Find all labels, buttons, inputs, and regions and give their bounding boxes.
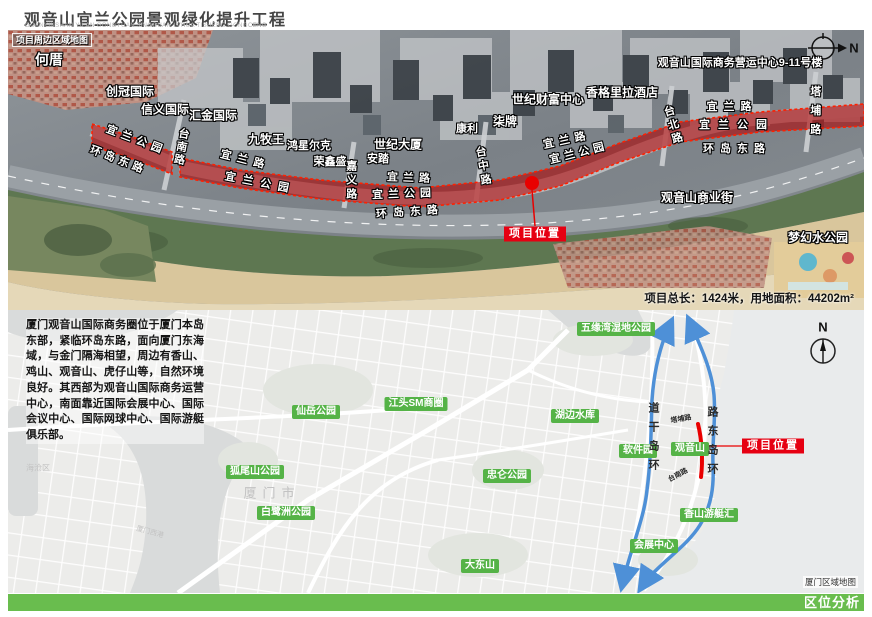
city-map: 厦门观音山国际商务圈位于厦门本岛东部，紧临环岛东路，面向厦门东海域，与金门隔海相… <box>8 310 864 593</box>
map-caption: 厦门区域地图 <box>803 576 858 588</box>
vertical-road-label: 道干岛环 <box>645 402 661 478</box>
map-corner-label: 项目周边区域地图 <box>12 33 92 47</box>
road-label: 宜兰公园 <box>699 120 775 132</box>
road-label: 宜兰公园 <box>372 188 436 202</box>
area-badge: 仙岳公园 <box>292 405 340 419</box>
building-label: 观音山商业街 <box>661 192 733 205</box>
district-label: 海沧区 <box>26 463 50 474</box>
area-badge: 白鹭洲公园 <box>257 506 315 520</box>
vertical-road-label: 路东岛环 <box>704 406 720 482</box>
area-badge: 大东山 <box>461 559 499 573</box>
area-badge: 江头SM商圈 <box>385 397 448 411</box>
building-label: 汇金国际 <box>189 110 237 123</box>
page-subtitle: GUANYINSHAN YILAN GONGYUAN JINGGUAN LVHU… <box>25 23 267 29</box>
building-label: 九牧王 <box>248 134 284 147</box>
building-label: 何厝 <box>35 53 63 68</box>
area-badge: 五缘湾湿地公园 <box>577 322 655 336</box>
compass-n-label-lower: N <box>818 320 827 335</box>
section-bar: 区位分析 <box>8 594 864 611</box>
section-title: 区位分析 <box>804 594 860 611</box>
project-location-badge: 项目位置 <box>504 227 566 242</box>
building-label: 创冠国际 <box>106 86 154 99</box>
area-badge: 香山游艇汇 <box>680 508 738 522</box>
project-stats: 项目总长：1424米，用地面积：44202m² <box>644 290 854 306</box>
compass-n-label: N <box>849 41 858 56</box>
location-description: 厦门观音山国际商务圈位于厦门本岛东部，紧临环岛东路，面向厦门东海域，与金门隔海相… <box>26 318 204 444</box>
area-badge: 会展中心 <box>630 539 678 553</box>
building-label: 安踏 <box>367 154 389 166</box>
building-label: 鸿星尔克 <box>287 141 331 153</box>
project-location-badge-lower: 项目位置 <box>742 439 804 454</box>
satellite-map: 项目周边区域地图 何厝创冠国际信义国际汇金国际九牧王鸿星尔克荣鑫盛安踏世纪大厦康… <box>8 30 864 310</box>
area-badge: 忠仑公园 <box>483 469 531 483</box>
road-label: 环岛东路 <box>703 144 771 156</box>
road-label: 塔埔路 <box>808 86 820 143</box>
area-badge: 狐尾山公园 <box>226 465 284 479</box>
building-label: 柒牌 <box>493 116 517 129</box>
area-badge: 湖边水库 <box>551 409 599 423</box>
building-label: 观音山国际商务营运中心9-11号楼 <box>658 58 822 70</box>
building-label: 梦幻水公园 <box>788 232 848 245</box>
building-label: 信义国际 <box>141 104 189 117</box>
building-label: 世纪大厦 <box>374 139 422 152</box>
road-label: 嘉义路 <box>344 160 356 202</box>
building-label: 康利 <box>456 124 478 136</box>
road-label: 宜兰路 <box>387 172 435 185</box>
building-label: 香格里拉酒店 <box>586 87 658 100</box>
building-label: 荣鑫盛 <box>314 157 347 169</box>
building-label: 世纪财富中心 <box>512 94 584 107</box>
road-label: 宜兰路 <box>707 102 758 114</box>
district-label: 厦门市 <box>243 483 300 502</box>
presentation-board: 观音山宜兰公园景观绿化提升工程 GUANYINSHAN YILAN GONGYU… <box>0 0 872 617</box>
